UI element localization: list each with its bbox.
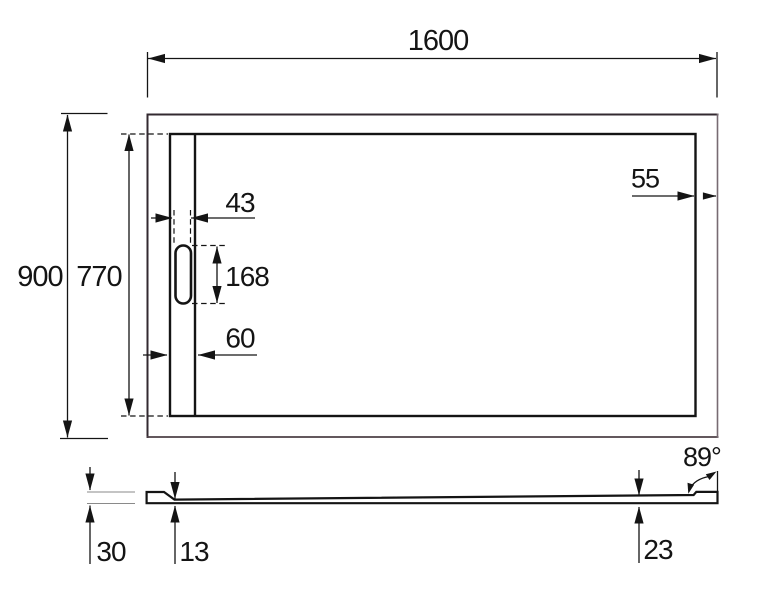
svg-text:60: 60	[225, 323, 255, 354]
svg-text:900: 900	[17, 261, 62, 293]
svg-text:13: 13	[179, 536, 209, 567]
svg-text:30: 30	[96, 536, 126, 567]
svg-text:1600: 1600	[408, 25, 469, 57]
svg-text:23: 23	[643, 534, 673, 565]
svg-text:770: 770	[76, 261, 121, 293]
svg-text:55: 55	[631, 164, 659, 194]
svg-text:43: 43	[225, 187, 255, 218]
svg-text:168: 168	[225, 261, 269, 292]
svg-text:89°: 89°	[683, 442, 721, 472]
